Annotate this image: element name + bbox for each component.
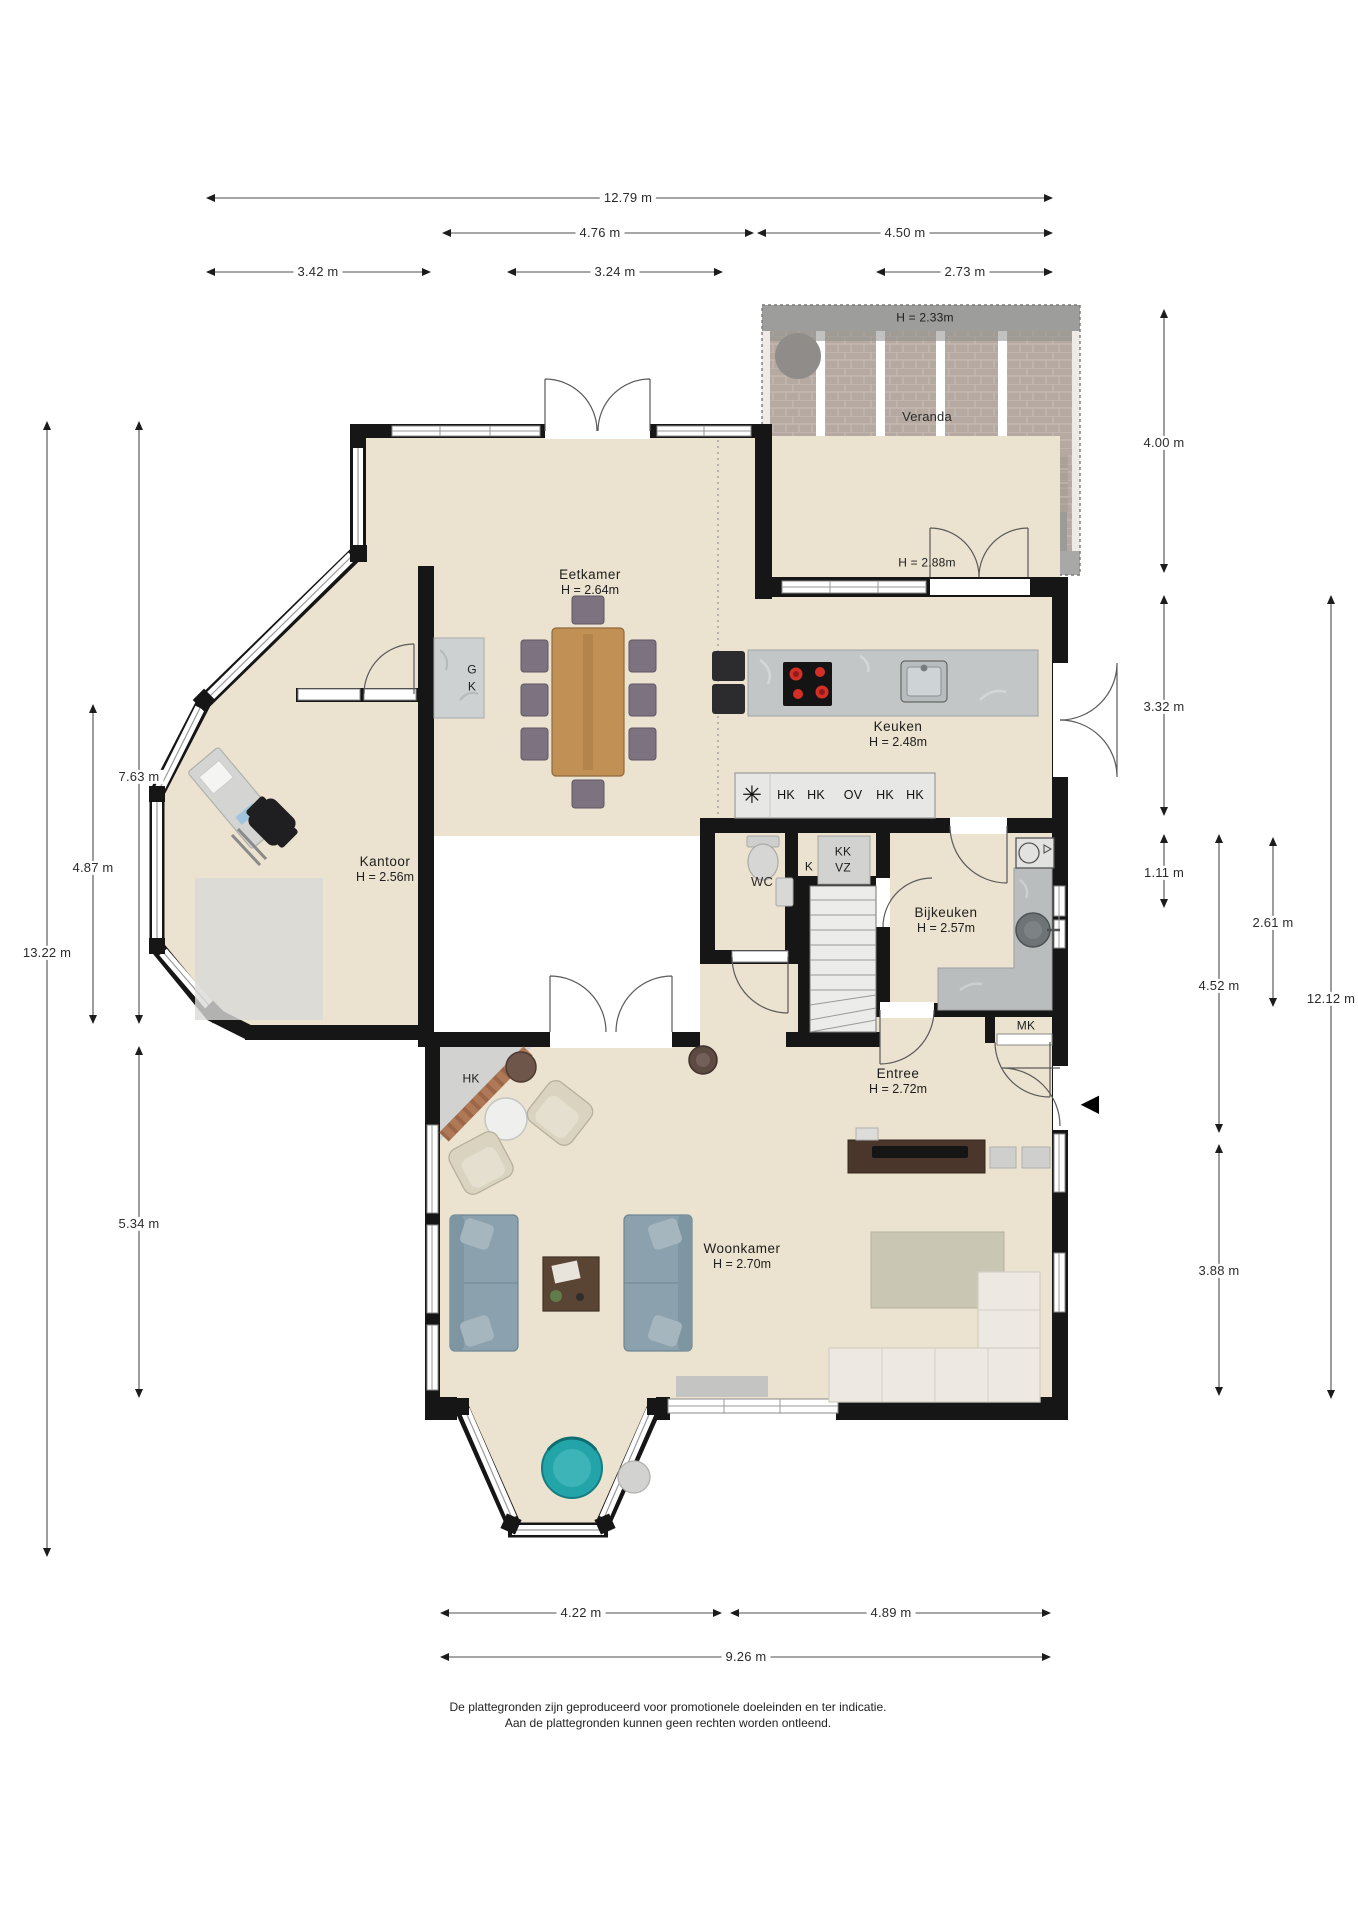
appliance-label: HK: [777, 789, 795, 803]
fireplace-chimney: [434, 638, 484, 718]
dimension-label: 4.52 m: [1195, 979, 1244, 993]
dimension-label: 4.50 m: [881, 226, 930, 240]
dimension-label: 4.00 m: [1140, 436, 1189, 450]
appliance-label: HK: [876, 789, 894, 803]
label-g: G: [467, 663, 477, 676]
dimension-label: 3.88 m: [1195, 1264, 1244, 1278]
room-label-wc: WC: [751, 875, 773, 889]
dimension-label: 3.42 m: [294, 265, 343, 279]
stairs: [810, 886, 876, 1032]
dimension-label: 9.26 m: [722, 1650, 771, 1664]
room-label-kantoor: Kantoor H = 2.56m: [356, 854, 414, 884]
appliance-label: HK: [807, 789, 825, 803]
dimension-label: 4.76 m: [576, 226, 625, 240]
bar-stool: [712, 684, 745, 714]
room-label-bijkeuken: Bijkeuken H = 2.57m: [914, 905, 977, 935]
label-hk-corner: HK: [462, 1072, 479, 1085]
veranda-label: Veranda: [902, 410, 952, 424]
dimension-label: 1.11 m: [1140, 866, 1188, 880]
cooktop: [783, 662, 832, 706]
tv-icon: [872, 1146, 968, 1158]
veranda-height-bottom-label: H = 2.88m: [898, 556, 956, 569]
coffee-table: [543, 1257, 599, 1311]
appliance-cabinet: [735, 773, 935, 818]
room-label-entree: Entree H = 2.72m: [869, 1066, 927, 1096]
label-k-fireplace: K: [468, 680, 476, 693]
dimension-label: 7.63 m: [115, 770, 164, 784]
dimension-label: 4.89 m: [867, 1606, 916, 1620]
bay-side-table: [618, 1461, 650, 1493]
stove-top: [696, 1053, 710, 1067]
appliance-label: OV: [844, 789, 862, 803]
veranda-height-top-label: H = 2.33m: [896, 311, 954, 324]
dimension-label: 2.61 m: [1249, 916, 1298, 930]
dimension-label: 13.22 m: [19, 946, 75, 960]
label-k-closet: K: [805, 860, 813, 873]
bar-stool: [712, 651, 745, 681]
dimension-label: 2.73 m: [941, 265, 990, 279]
wc-sink: [776, 878, 793, 906]
sink: [901, 661, 947, 702]
doormat: [676, 1376, 768, 1397]
label-kk: KK: [835, 845, 851, 858]
dimension-label: 12.12 m: [1303, 992, 1358, 1006]
dimension-label: 3.24 m: [591, 265, 640, 279]
footer-disclaimer-line1: De plattegronden zijn geproduceerd voor …: [450, 1700, 887, 1714]
extractor-fan-icon: ✳: [742, 783, 762, 809]
room-label-eetkamer: Eetkamer H = 2.64m: [559, 567, 621, 597]
floorplan-canvas: [0, 0, 1358, 1920]
dimension-label: 5.34 m: [115, 1217, 164, 1231]
room-label-woonkamer: Woonkamer H = 2.70m: [703, 1241, 780, 1271]
washing-machine-icon: [1016, 838, 1054, 868]
dimension-label: 4.22 m: [557, 1606, 606, 1620]
floorplan-page: 12.79 m 4.76 m 4.50 m 3.42 m 3.24 m 2.73…: [0, 0, 1358, 1920]
room-label-keuken: Keuken H = 2.48m: [869, 719, 927, 749]
label-vz: VZ: [835, 861, 851, 874]
sofa-left: [450, 1215, 518, 1351]
kitchen-island: [712, 650, 1038, 716]
appliance-label: HK: [906, 789, 924, 803]
veranda-table: [775, 333, 821, 379]
dimension-label: 4.87 m: [69, 861, 118, 875]
dimension-label: 3.32 m: [1140, 700, 1189, 714]
dimension-label: 12.79 m: [600, 191, 656, 205]
entrance-arrow-icon: ◀: [1081, 1091, 1100, 1117]
footer-disclaimer-line2: Aan de plattegronden kunnen geen rechten…: [505, 1716, 831, 1730]
wood-stove-icon: [506, 1052, 536, 1082]
sofa-right: [624, 1215, 692, 1351]
label-mk: MK: [1017, 1019, 1035, 1032]
